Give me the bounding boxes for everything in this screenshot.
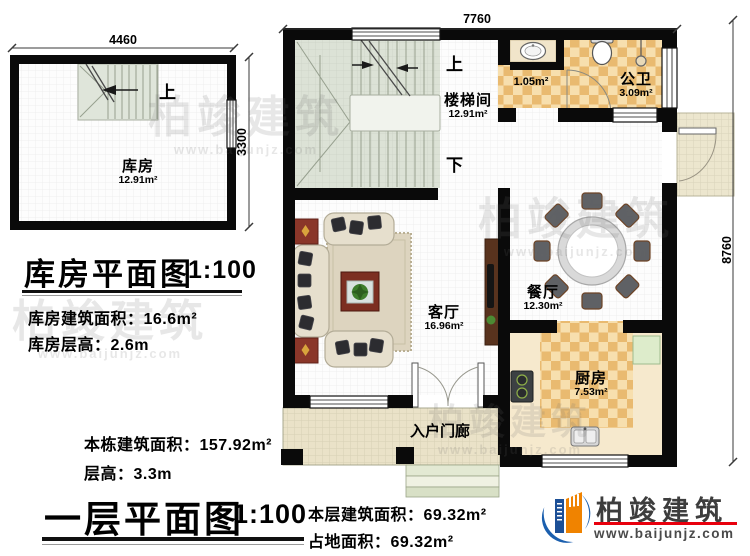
- room-label-dining: 餐厅 12.30m²: [523, 285, 562, 312]
- floor-title-rule-shadow: [42, 544, 304, 545]
- floor-plan-title: 一层平面图: [44, 489, 244, 543]
- room-label-public-bath: 公卫 3.09m²: [619, 72, 652, 99]
- kitchen-window: [542, 455, 628, 467]
- kitchen-sink: [571, 427, 599, 446]
- brand-logo-icon: [538, 485, 594, 547]
- dim-floor-height: 8760: [720, 227, 734, 273]
- stair-landing: [350, 95, 440, 131]
- room-label-bath-lobby: 1.05m²: [514, 77, 549, 89]
- building-total-area: 本栋建筑面积：157.92m²: [84, 431, 272, 455]
- room-label-storage: 库房 12.91m²: [118, 159, 157, 186]
- dim-storage-width: 4460: [100, 33, 146, 47]
- floor-plan-scale: 1:100: [233, 499, 307, 530]
- bath-inner-window: [613, 108, 657, 122]
- storage-stair-area: [78, 64, 158, 120]
- floor-plan-sheet: 4460 3300 7760 8760 库房 12.91m² 上 楼梯间 12.…: [0, 0, 750, 556]
- storage-plan-scale: 1:100: [188, 256, 257, 285]
- storage-plan-title: 库房平面图: [24, 249, 194, 294]
- room-label-living: 客厅 16.96m²: [424, 305, 463, 332]
- washbasin: [521, 43, 546, 60]
- side-table-bottom: [293, 338, 318, 363]
- brand-red-line: [594, 522, 737, 525]
- storage-plan: [8, 44, 253, 231]
- stair-window: [352, 28, 440, 40]
- first-floor-plan: [279, 16, 737, 497]
- stair-down-label: 下: [446, 151, 463, 176]
- floor-height: 层高：3.3m: [84, 460, 172, 484]
- storage-title-rule: [22, 290, 242, 293]
- dim-storage-height: 3300: [235, 119, 249, 165]
- kitchen-door-floor: [557, 321, 623, 333]
- side-table-top: [293, 219, 318, 244]
- brand-url: www.baijunjz.com: [594, 526, 735, 541]
- room-label-kitchen: 厨房 7.53m²: [574, 371, 607, 398]
- side-platform-grid: [677, 113, 734, 196]
- floor-area: 本层建筑面积：69.32m²: [308, 501, 487, 525]
- storage-info-height: 库房层高：2.6m: [28, 331, 149, 355]
- storage-info-area: 库房建筑面积：16.6m²: [28, 305, 197, 329]
- entry-step: [406, 487, 499, 497]
- room-label-entry-porch: 入户门廊: [410, 424, 470, 440]
- entry-step: [406, 476, 499, 487]
- tv: [487, 264, 494, 308]
- storage-title-rule-shadow: [22, 295, 242, 296]
- entry-step: [406, 465, 499, 476]
- floor-title-rule: [42, 537, 304, 541]
- bath-side-window: [662, 48, 677, 108]
- land-area: 占地面积：69.32m²: [308, 528, 454, 552]
- living-window: [310, 396, 388, 408]
- stove: [511, 371, 533, 402]
- coffee-table: [341, 272, 379, 311]
- room-label-stairwell: 楼梯间 12.91m²: [444, 93, 492, 120]
- fridge: [633, 336, 660, 364]
- cabinet-plant: [487, 316, 496, 325]
- storage-up-label: 上: [159, 78, 176, 103]
- stair-up-label: 上: [446, 50, 463, 75]
- dim-floor-width: 7760: [454, 12, 500, 26]
- tv-cabinet: [485, 239, 499, 345]
